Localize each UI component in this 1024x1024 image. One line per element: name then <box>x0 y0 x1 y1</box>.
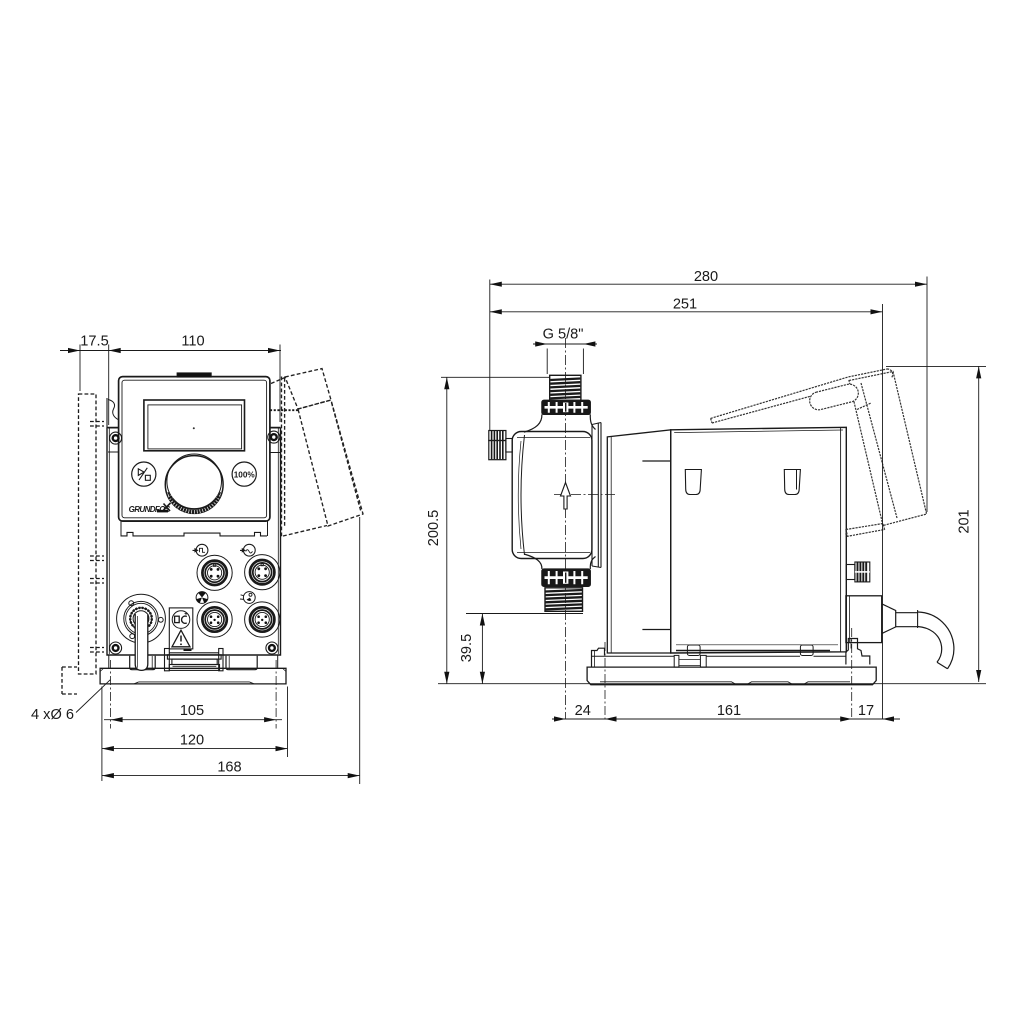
svg-text:39.5: 39.5 <box>459 634 475 662</box>
svg-text:G 5/8": G 5/8" <box>543 327 584 343</box>
svg-text:24: 24 <box>575 703 591 719</box>
svg-text:200.5: 200.5 <box>426 510 442 547</box>
svg-text:168: 168 <box>217 760 241 776</box>
svg-text:280: 280 <box>694 269 718 285</box>
svg-text:120: 120 <box>180 733 204 749</box>
svg-text:201: 201 <box>957 509 973 533</box>
svg-text:4 xØ 6: 4 xØ 6 <box>31 707 74 723</box>
svg-text:17: 17 <box>858 703 874 719</box>
svg-text:105: 105 <box>180 703 204 719</box>
svg-text:161: 161 <box>717 703 741 719</box>
svg-text:17.5: 17.5 <box>80 334 108 350</box>
svg-text:251: 251 <box>673 297 697 313</box>
svg-text:100%: 100% <box>234 470 256 479</box>
svg-text:110: 110 <box>181 334 204 350</box>
